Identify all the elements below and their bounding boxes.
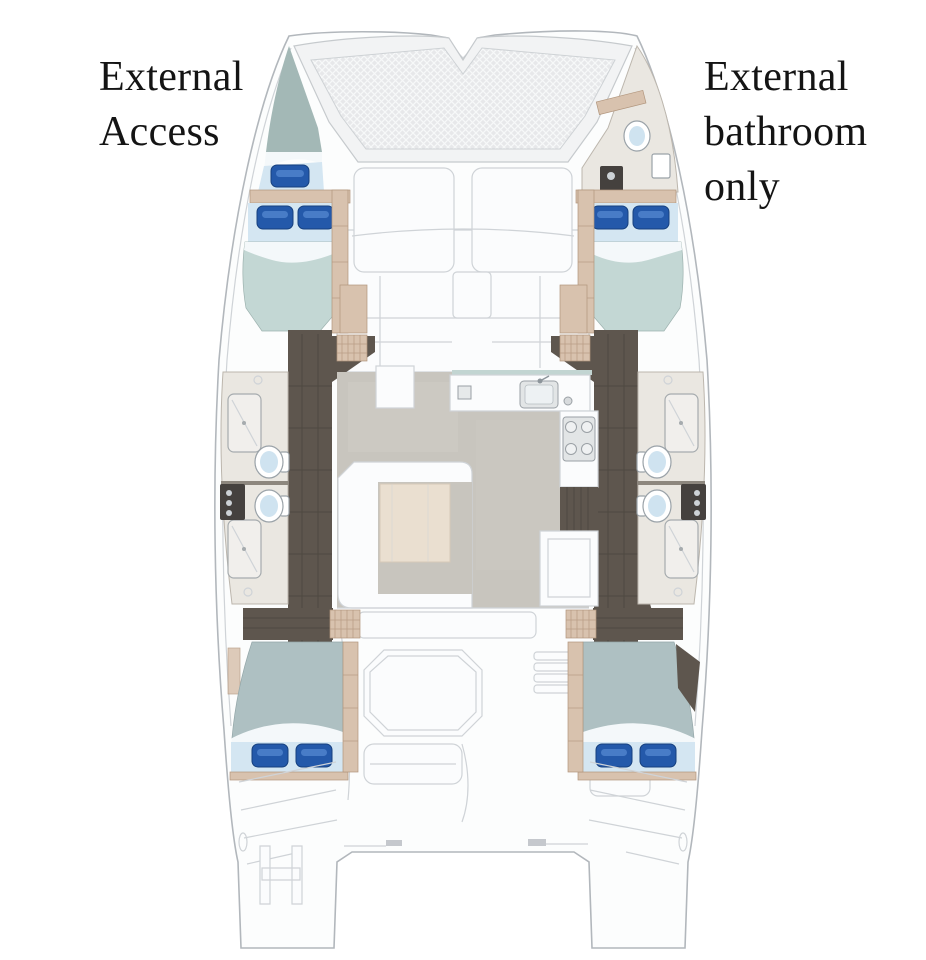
saloon xyxy=(337,366,598,608)
floor-plan-canvas: External Access External bathroom only xyxy=(0,0,926,960)
port-bathrooms xyxy=(220,372,289,604)
unit-knob xyxy=(694,490,700,496)
pillow-highlight xyxy=(597,211,623,218)
wardrobe xyxy=(568,642,583,772)
starboard-aft-cabin xyxy=(566,608,700,780)
starboard-forward-cabin xyxy=(578,190,683,333)
galley-sink xyxy=(520,376,558,408)
pillow-highlight xyxy=(262,211,288,218)
shower-tray xyxy=(228,394,261,452)
pillow-highlight xyxy=(601,749,627,756)
corridor-floor xyxy=(288,330,332,646)
counter-control xyxy=(458,386,471,399)
counter-knob xyxy=(564,397,572,405)
galley-cabinet xyxy=(376,366,414,408)
saloon-sofa xyxy=(338,462,472,608)
saloon-table xyxy=(380,484,450,562)
pillow-highlight xyxy=(638,211,664,218)
unit-knob xyxy=(226,500,232,506)
louver-grate xyxy=(560,335,590,361)
unit-knob xyxy=(694,510,700,516)
bed-frame xyxy=(230,772,348,780)
louver-grate xyxy=(330,610,360,638)
cockpit-sideboard xyxy=(358,612,536,638)
bed-frame xyxy=(578,772,696,780)
bathroom-shelf xyxy=(652,154,670,178)
toilet-icon xyxy=(624,121,650,151)
cabinet xyxy=(340,285,367,333)
bow-sunpad-starboard xyxy=(472,168,572,272)
shower-tray xyxy=(665,520,698,578)
galley-stove xyxy=(563,417,595,461)
pillow-highlight xyxy=(301,749,327,756)
wardrobe xyxy=(343,642,358,772)
chart-cabinet xyxy=(540,531,598,606)
systems-unit xyxy=(681,484,706,520)
corridor-floor xyxy=(594,330,638,646)
pillow-highlight xyxy=(276,170,304,177)
shower-tray xyxy=(665,394,698,452)
pantry-unit xyxy=(560,487,598,531)
port-forward-cabin xyxy=(243,190,348,333)
unit-knob xyxy=(226,510,232,516)
unit-knob xyxy=(694,500,700,506)
cabinet xyxy=(560,285,587,333)
louver-grate xyxy=(337,335,367,361)
galley-window-sill xyxy=(452,370,592,375)
trampoline xyxy=(294,36,632,162)
port-companionway xyxy=(337,285,367,361)
port-aft-cabin xyxy=(228,608,360,780)
louver-grate xyxy=(566,610,596,638)
shower-tray xyxy=(228,520,261,578)
deck-hatch xyxy=(453,272,491,318)
starboard-companionway xyxy=(560,285,590,361)
unit-knob xyxy=(226,490,232,496)
entry-band xyxy=(593,608,683,640)
entry-band xyxy=(243,608,333,640)
pillow-highlight xyxy=(303,211,329,218)
pillow-highlight xyxy=(645,749,671,756)
side-trim xyxy=(228,648,240,694)
catamaran-floor-plan xyxy=(0,0,926,960)
bow-sunpad-port xyxy=(354,168,454,272)
console-knob xyxy=(607,172,615,180)
starboard-bathrooms xyxy=(637,372,706,604)
pillow-highlight xyxy=(257,749,283,756)
systems-unit xyxy=(220,484,245,520)
cockpit-table xyxy=(364,650,482,736)
